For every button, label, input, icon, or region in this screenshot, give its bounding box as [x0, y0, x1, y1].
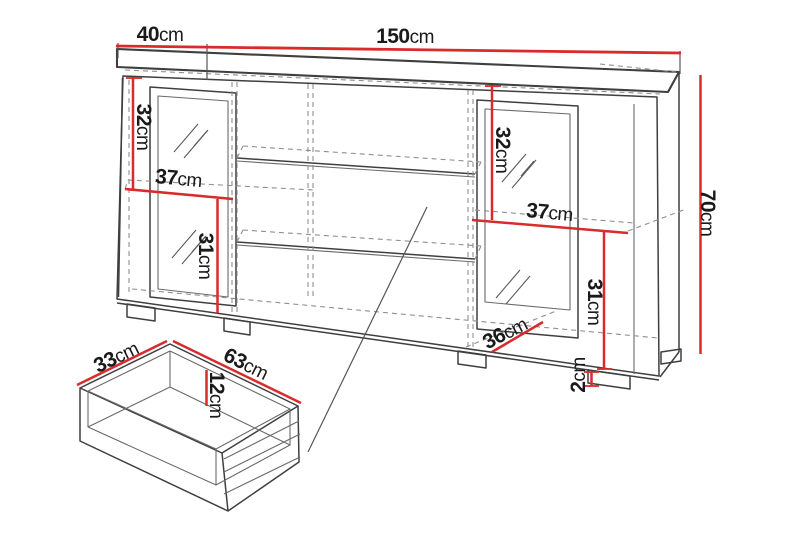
- hidden-shelf-end: [475, 246, 481, 259]
- dim-label-height: 70cm: [696, 190, 719, 237]
- foot: [224, 318, 250, 335]
- hidden-bottom-back-edge: [132, 289, 658, 338]
- dim-label-top-width: 150cm: [376, 25, 434, 48]
- drawer-leader: [308, 207, 427, 452]
- glass-hatch-mark: [172, 230, 196, 258]
- cabinet-left-edge: [119, 78, 123, 297]
- cabinet-outline: [117, 49, 681, 389]
- hidden-shelf-end: [475, 162, 481, 174]
- hidden-shelf-back: [243, 146, 481, 162]
- foot: [458, 351, 486, 368]
- dim-label-right-door-glass: 32cm: [491, 127, 514, 174]
- drawer-floor: [88, 387, 290, 485]
- dim-label-interior-depth: 36cm: [479, 312, 531, 354]
- shelf-thickness-edge: [237, 245, 475, 262]
- drawer-side-groove: [224, 457, 300, 494]
- foot: [127, 304, 155, 321]
- dim-label-left-shelf: 37cm: [154, 165, 203, 192]
- drawer-front-corner-edge: [222, 453, 228, 511]
- glass-hatch-mark: [521, 161, 534, 176]
- shelf-front-edge: [237, 242, 475, 259]
- glass-hatch-mark: [194, 131, 207, 146]
- dim-label-left-door-glass: 32cm: [132, 104, 155, 151]
- glass-hatching: [172, 124, 536, 304]
- sideboard-diagram-canvas: 40cm 150cm 70cm 32cm 37cm 31cm 32cm 37cm…: [0, 0, 800, 533]
- furniture-dimension-drawing: 40cm 150cm 70cm 32cm 37cm 31cm 32cm 37cm…: [0, 0, 800, 533]
- cabinet-right-bottom-edge: [660, 352, 679, 377]
- glass-hatch-mark: [496, 270, 520, 298]
- dim-label-drawer-height: 12cm: [205, 372, 228, 419]
- glass-hatch-mark: [174, 124, 198, 152]
- glass-hatch-mark: [506, 276, 530, 304]
- dim-label-foot-height: 2cm: [567, 357, 590, 393]
- shelf-thickness-edge: [237, 161, 475, 177]
- dim-line-left-37: [125, 189, 233, 199]
- dim-label-left-lower: 31cm: [194, 233, 217, 280]
- hidden-left-shelf-end: [125, 180, 128, 189]
- foot-back-right: [661, 349, 681, 364]
- dim-label-drawer-depth: 33cm: [90, 337, 142, 378]
- leader-line: [308, 207, 427, 452]
- dim-label-top-depth: 40cm: [137, 23, 184, 46]
- hidden-shelf-back: [243, 230, 481, 246]
- hidden-right-shelf-end: [628, 209, 686, 231]
- drawer-front-rim: [80, 388, 298, 453]
- shelf-front-edge: [237, 158, 475, 174]
- hidden-shelf-end: [237, 230, 243, 242]
- dim-label-right-shelf: 37cm: [525, 199, 574, 226]
- glass-hatch-mark: [512, 160, 536, 188]
- hidden-shelf-end: [237, 146, 243, 158]
- top-panel: [117, 49, 679, 92]
- dim-label-right-lower: 31cm: [583, 279, 606, 326]
